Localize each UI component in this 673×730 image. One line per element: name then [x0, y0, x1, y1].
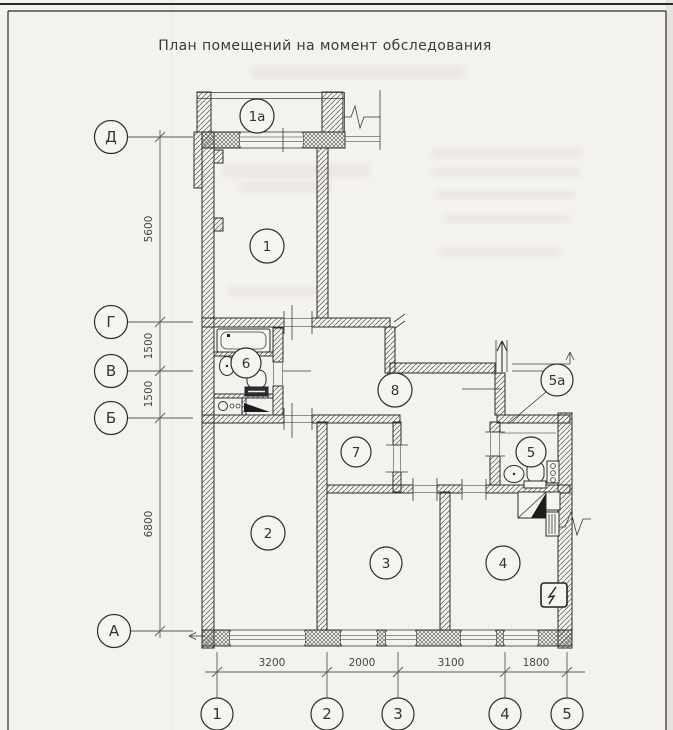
wall	[497, 415, 570, 423]
wall	[312, 318, 390, 327]
room-label-7: 7	[341, 437, 371, 467]
meter-symbol	[219, 402, 228, 411]
wall	[490, 422, 500, 432]
room-number: 5	[527, 445, 536, 461]
wall	[273, 328, 283, 362]
room-number: 3	[382, 556, 391, 572]
radiator	[546, 512, 559, 536]
room-number: 1а	[249, 109, 266, 125]
axis-label: Г	[106, 313, 115, 331]
bathtub-drain	[227, 334, 230, 337]
wall-end-tick	[394, 321, 405, 329]
wall	[202, 415, 284, 423]
electric-panel-icon	[541, 583, 567, 607]
window-pier	[416, 630, 461, 646]
balcony-pier	[197, 92, 211, 132]
wall-end-tick	[394, 314, 405, 322]
axis-label: 5	[562, 705, 572, 723]
axis-label: Д	[105, 128, 117, 146]
axis-label: 4	[500, 705, 510, 723]
dimensions-left: 5600 1500 1500 6800	[143, 216, 155, 538]
break-line	[343, 106, 380, 128]
wall	[317, 148, 328, 318]
scanned-drawing-sheet: План помещений на момент обследования Д …	[0, 0, 673, 730]
wall	[327, 485, 413, 493]
window-pier	[202, 132, 240, 148]
pilaster	[214, 218, 223, 231]
room-label-1a: 1а	[240, 99, 274, 133]
dimension-label: 3100	[438, 657, 465, 669]
window-pier	[305, 630, 341, 646]
room-number: 7	[352, 445, 361, 461]
room-number: 8	[391, 383, 400, 399]
window-pier	[377, 630, 386, 646]
duct-box	[546, 492, 560, 510]
wall	[558, 413, 572, 648]
room-number: 2	[264, 526, 273, 542]
room-number: 1	[263, 239, 272, 255]
room-label-5: 5	[516, 437, 546, 467]
window-pier	[202, 630, 230, 646]
window	[504, 632, 538, 644]
room-label-2: 2	[251, 516, 285, 550]
vent-shaft	[244, 403, 270, 412]
wall	[317, 422, 327, 630]
axis-grid-left: Д Г В Б А 5600 1500 1500 6800	[95, 121, 194, 648]
axis-grid-bottom: 3200 2000 3100 1800 1 2 3 4 5	[201, 652, 585, 730]
balcony-pier	[322, 92, 343, 132]
room-label-1: 1	[250, 229, 284, 263]
drawing-title: План помещений на момент обследования	[158, 38, 491, 54]
room-number: 5а	[549, 373, 566, 389]
dimension-label: 2000	[349, 657, 376, 669]
stove	[547, 461, 559, 483]
window-pier	[303, 132, 345, 148]
dimension-label: 1500	[143, 333, 155, 360]
axis-label: 2	[322, 705, 332, 723]
dimension-label: 1500	[143, 381, 155, 408]
room-label-6: 6	[231, 348, 261, 378]
axis-label: 3	[393, 705, 403, 723]
room-number: 4	[499, 556, 508, 572]
room-label-8: 8	[378, 373, 412, 407]
dimension-label: 1800	[523, 657, 550, 669]
wall	[202, 318, 284, 327]
axis-label: 1	[212, 705, 222, 723]
window	[386, 632, 416, 644]
dimensions-bottom: 3200 2000 3100 1800	[259, 657, 550, 669]
appliance-base	[524, 481, 546, 488]
wall	[273, 386, 283, 415]
room-label-3: 3	[370, 547, 402, 579]
window-pier	[496, 630, 504, 646]
room-number: 6	[242, 356, 251, 372]
window-pier	[538, 630, 572, 646]
dimension-label: 6800	[143, 511, 155, 538]
wall	[202, 132, 214, 648]
wall	[390, 363, 495, 373]
dimension-label: 5600	[143, 216, 155, 243]
room-label-4: 4	[486, 546, 520, 580]
window	[461, 632, 496, 644]
wall	[440, 492, 450, 630]
wall	[490, 456, 500, 485]
axis-label: В	[106, 362, 116, 380]
axis-label: Б	[106, 409, 116, 427]
window	[341, 632, 377, 644]
wall	[194, 132, 202, 188]
wall	[393, 422, 401, 445]
window	[230, 632, 305, 644]
dimension-label: 3200	[259, 657, 286, 669]
axis-label: А	[109, 622, 120, 640]
pilaster	[214, 150, 223, 163]
wall	[495, 373, 505, 415]
window	[240, 134, 303, 146]
floor-plan-drawing: План помещений на момент обследования Д …	[0, 0, 673, 730]
